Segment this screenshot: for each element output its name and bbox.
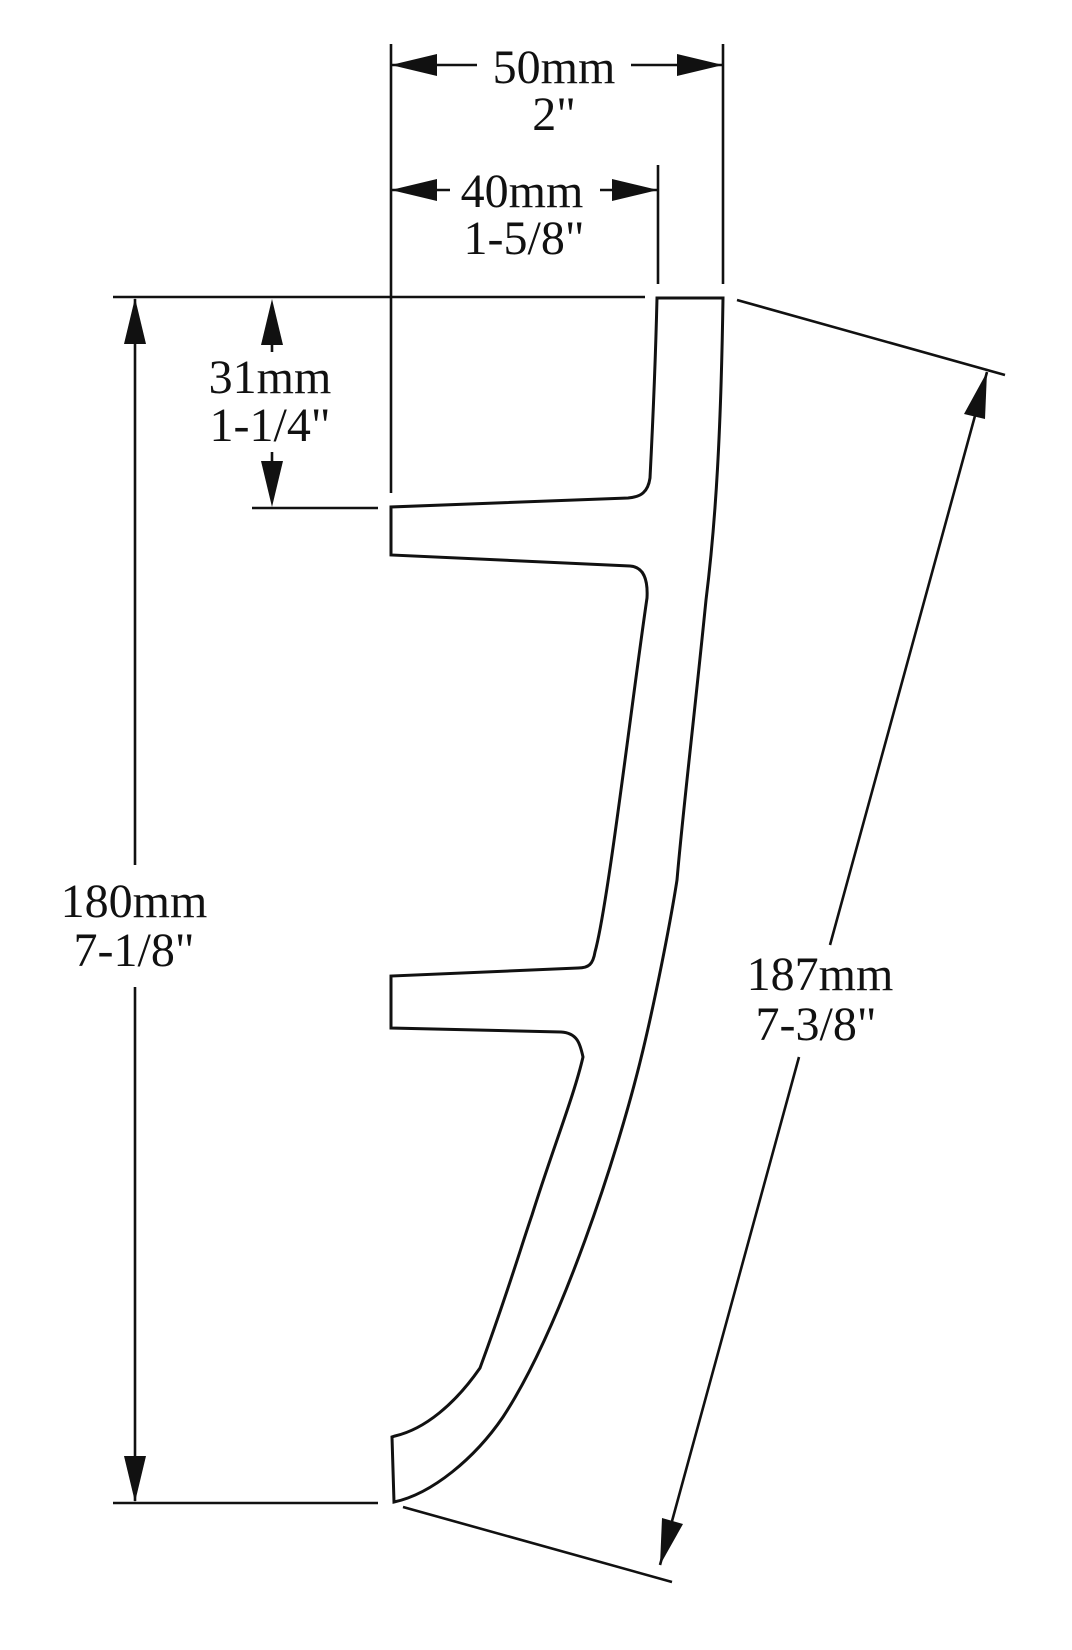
dim-50mm-arrow-right-icon: [677, 54, 723, 76]
dim-31mm-arrow-up-icon: [261, 299, 283, 345]
dim-180mm-label-metric: 180mm: [61, 875, 208, 928]
dim-50mm-arrow-left-icon: [391, 54, 437, 76]
dim-40mm: 40mm 1-5/8": [391, 165, 658, 265]
extension-line-slant-top: [737, 300, 1005, 375]
molding-profile-outline: [391, 298, 723, 1502]
dim-40mm-arrow-left-icon: [391, 179, 437, 201]
technical-drawing-page: 50mm 2" 40mm 1-5/8" 31mm 1-1/4" 180mm 7-…: [0, 0, 1072, 1650]
dimension-drawing-canvas: 50mm 2" 40mm 1-5/8" 31mm 1-1/4" 180mm 7-…: [0, 0, 1072, 1650]
dim-50mm: 50mm 2": [391, 41, 723, 141]
dim-31mm: 31mm 1-1/4": [209, 299, 332, 507]
dim-180mm: 180mm 7-1/8": [61, 298, 208, 1502]
dim-187mm-label-imperial: 7-3/8": [756, 998, 877, 1051]
extension-line-slant-bottom: [403, 1507, 672, 1582]
dim-40mm-label-imperial: 1-5/8": [464, 212, 585, 265]
dim-187mm-line-upper: [830, 372, 987, 945]
dim-40mm-label-metric: 40mm: [461, 165, 584, 218]
dim-40mm-arrow-right-icon: [612, 179, 658, 201]
dim-180mm-label-imperial: 7-1/8": [74, 924, 195, 977]
dim-31mm-arrow-down-icon: [261, 461, 283, 507]
dim-31mm-label-metric: 31mm: [209, 351, 332, 404]
dim-187mm-arrow-down-icon: [660, 1518, 683, 1565]
dim-31mm-label-imperial: 1-1/4": [210, 399, 331, 452]
dim-180mm-arrow-down-icon: [124, 1456, 146, 1502]
dim-187mm-label-metric: 187mm: [747, 948, 894, 1001]
dim-187mm-arrow-up-icon: [964, 372, 987, 419]
dim-180mm-arrow-up-icon: [124, 298, 146, 344]
dim-50mm-label-imperial: 2": [532, 88, 576, 141]
extension-lines: [113, 44, 1005, 1582]
dim-187mm: 187mm 7-3/8": [660, 372, 987, 1565]
dim-50mm-label-metric: 50mm: [493, 41, 616, 94]
dim-187mm-line-lower: [660, 1057, 799, 1565]
